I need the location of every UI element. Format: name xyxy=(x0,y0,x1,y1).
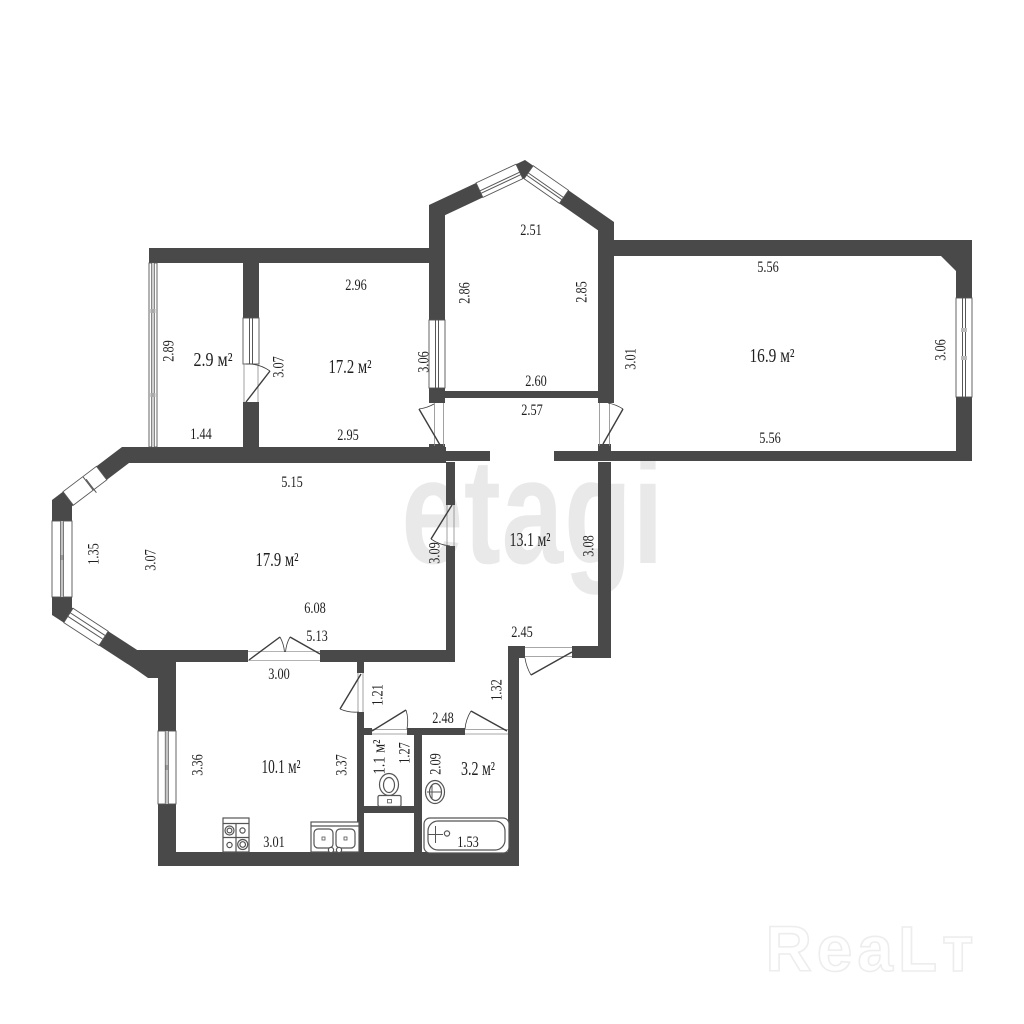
svg-text:6.08: 6.08 xyxy=(304,600,326,617)
svg-text:10.1 м²: 10.1 м² xyxy=(262,757,301,778)
svg-text:3.07: 3.07 xyxy=(270,356,287,378)
svg-text:1.53: 1.53 xyxy=(457,834,479,851)
svg-text:2.95: 2.95 xyxy=(337,427,359,444)
svg-text:3.37: 3.37 xyxy=(333,754,350,776)
svg-text:5.56: 5.56 xyxy=(757,259,779,276)
svg-text:3.36: 3.36 xyxy=(189,754,206,776)
svg-text:13.1 м²: 13.1 м² xyxy=(510,530,551,551)
svg-text:2.60: 2.60 xyxy=(525,373,547,390)
svg-text:2.89: 2.89 xyxy=(160,340,177,362)
svg-text:17.2 м²: 17.2 м² xyxy=(329,357,372,378)
svg-text:2.48: 2.48 xyxy=(432,710,454,727)
svg-text:2.96: 2.96 xyxy=(345,277,367,294)
svg-text:17.9 м²: 17.9 м² xyxy=(256,550,299,571)
svg-text:3.2 м²: 3.2 м² xyxy=(461,759,495,780)
svg-text:2.09: 2.09 xyxy=(427,753,444,775)
svg-text:3.06: 3.06 xyxy=(932,339,949,361)
svg-text:2.85: 2.85 xyxy=(573,281,590,303)
svg-text:2.45: 2.45 xyxy=(511,624,533,641)
svg-text:1.44: 1.44 xyxy=(190,426,212,443)
svg-text:3.08: 3.08 xyxy=(580,535,597,557)
svg-text:2.57: 2.57 xyxy=(521,402,543,419)
svg-text:5.15: 5.15 xyxy=(281,474,303,491)
svg-text:2.51: 2.51 xyxy=(520,222,542,239)
svg-text:3.00: 3.00 xyxy=(268,666,290,683)
svg-text:ReaLт: ReaLт xyxy=(766,913,979,985)
svg-text:3.01: 3.01 xyxy=(263,834,285,851)
svg-text:2.86: 2.86 xyxy=(456,282,473,304)
svg-text:3.07: 3.07 xyxy=(142,549,159,571)
svg-text:3.01: 3.01 xyxy=(622,348,639,370)
svg-text:1.27: 1.27 xyxy=(396,742,413,764)
svg-text:1.1 м²: 1.1 м² xyxy=(369,740,388,775)
svg-text:5.56: 5.56 xyxy=(759,430,781,447)
svg-text:3.09: 3.09 xyxy=(426,542,443,564)
svg-text:3.06: 3.06 xyxy=(415,351,432,373)
svg-text:16.9 м²: 16.9 м² xyxy=(750,346,795,367)
svg-text:1.21: 1.21 xyxy=(369,684,386,706)
svg-text:1.35: 1.35 xyxy=(85,543,102,565)
svg-text:2.9 м²: 2.9 м² xyxy=(194,350,233,371)
svg-text:1.32: 1.32 xyxy=(488,679,505,701)
svg-text:5.13: 5.13 xyxy=(306,628,328,645)
